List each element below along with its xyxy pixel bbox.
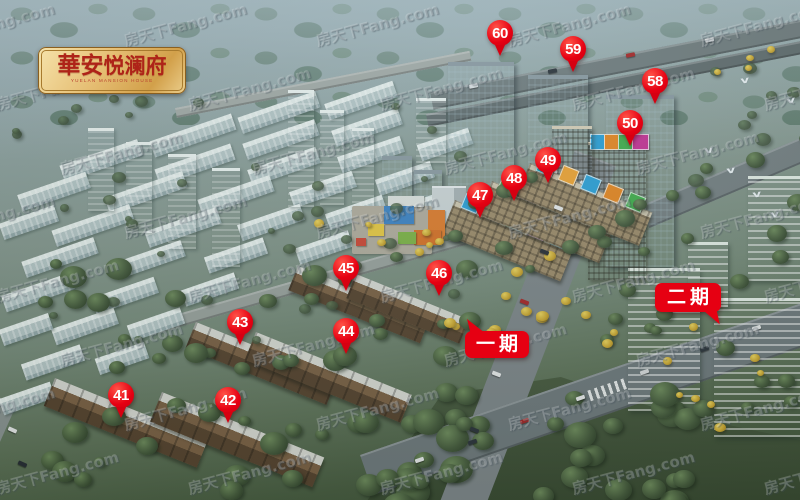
building-marker-48[interactable]: 48: [501, 165, 527, 201]
marker-tail: [568, 61, 578, 72]
marker-tail: [341, 280, 351, 291]
marker-number: 45: [338, 261, 354, 276]
aerial-render-image: vvvvvv 房天下Fang.com房天下Fang.com房天下Fang.com…: [0, 0, 800, 500]
marker-number: 42: [220, 393, 236, 408]
phase-2-label: 二期: [655, 283, 721, 312]
marker-tail: [475, 207, 485, 218]
marker-tail: [509, 190, 519, 201]
marker-circle: 50: [617, 110, 643, 136]
building-marker-59[interactable]: 59: [560, 36, 586, 72]
marker-number: 49: [540, 153, 556, 168]
marker-number: 60: [492, 26, 508, 41]
phase-2-label-text: 二期: [663, 288, 713, 307]
phase-1-label-text: 一期: [472, 335, 522, 354]
building-marker-60[interactable]: 60: [487, 20, 513, 56]
marker-circle: 41: [108, 382, 134, 408]
building-marker-49[interactable]: 49: [535, 147, 561, 183]
marker-number: 48: [506, 171, 522, 186]
marker-number: 47: [472, 188, 488, 203]
building-marker-58[interactable]: 58: [642, 68, 668, 104]
marker-circle: 49: [535, 147, 561, 173]
marker-number: 43: [232, 315, 248, 330]
building-marker-50[interactable]: 50: [617, 110, 643, 146]
marker-number: 50: [622, 116, 638, 131]
project-logo-plaque: 華安悦澜府 YUELAN MANSION HOUSE: [38, 47, 186, 94]
marker-circle: 48: [501, 165, 527, 191]
marker-circle: 59: [560, 36, 586, 62]
building-marker-43[interactable]: 43: [227, 309, 253, 345]
building-marker-41[interactable]: 41: [108, 382, 134, 418]
phase-1-label: 一期: [465, 331, 529, 358]
marker-number: 58: [647, 74, 663, 89]
marker-number: 41: [113, 388, 129, 403]
marker-tail: [235, 334, 245, 345]
marker-tail: [650, 93, 660, 104]
marker-tail: [116, 407, 126, 418]
marker-circle: 47: [467, 182, 493, 208]
marker-tail: [543, 172, 553, 183]
building-marker-45[interactable]: 45: [333, 255, 359, 291]
project-name-secondary: 悦澜府: [104, 53, 167, 78]
marker-circle: 45: [333, 255, 359, 281]
marker-tail: [341, 343, 351, 354]
project-name-primary: 華安: [58, 52, 104, 79]
marker-tail: [495, 45, 505, 56]
project-name: 華安悦澜府: [58, 54, 167, 77]
phase-2-label-tail: [702, 307, 719, 328]
building-marker-46[interactable]: 46: [426, 260, 452, 296]
marker-circle: 60: [487, 20, 513, 46]
marker-tail: [625, 135, 635, 146]
marker-number: 46: [431, 266, 447, 281]
marker-number: 44: [338, 324, 354, 339]
project-name-english: YUELAN MANSION HOUSE: [71, 78, 154, 83]
marker-circle: 44: [333, 318, 359, 344]
logo-frame: 華安悦澜府 YUELAN MANSION HOUSE: [41, 50, 183, 91]
marker-tail: [223, 412, 233, 423]
marker-circle: 42: [215, 387, 241, 413]
building-marker-42[interactable]: 42: [215, 387, 241, 423]
building-marker-44[interactable]: 44: [333, 318, 359, 354]
marker-circle: 46: [426, 260, 452, 286]
phase-1-label-tail: [467, 316, 485, 337]
building-marker-47[interactable]: 47: [467, 182, 493, 218]
marker-circle: 43: [227, 309, 253, 335]
marker-tail: [434, 285, 444, 296]
marker-number: 59: [565, 42, 581, 57]
marker-circle: 58: [642, 68, 668, 94]
